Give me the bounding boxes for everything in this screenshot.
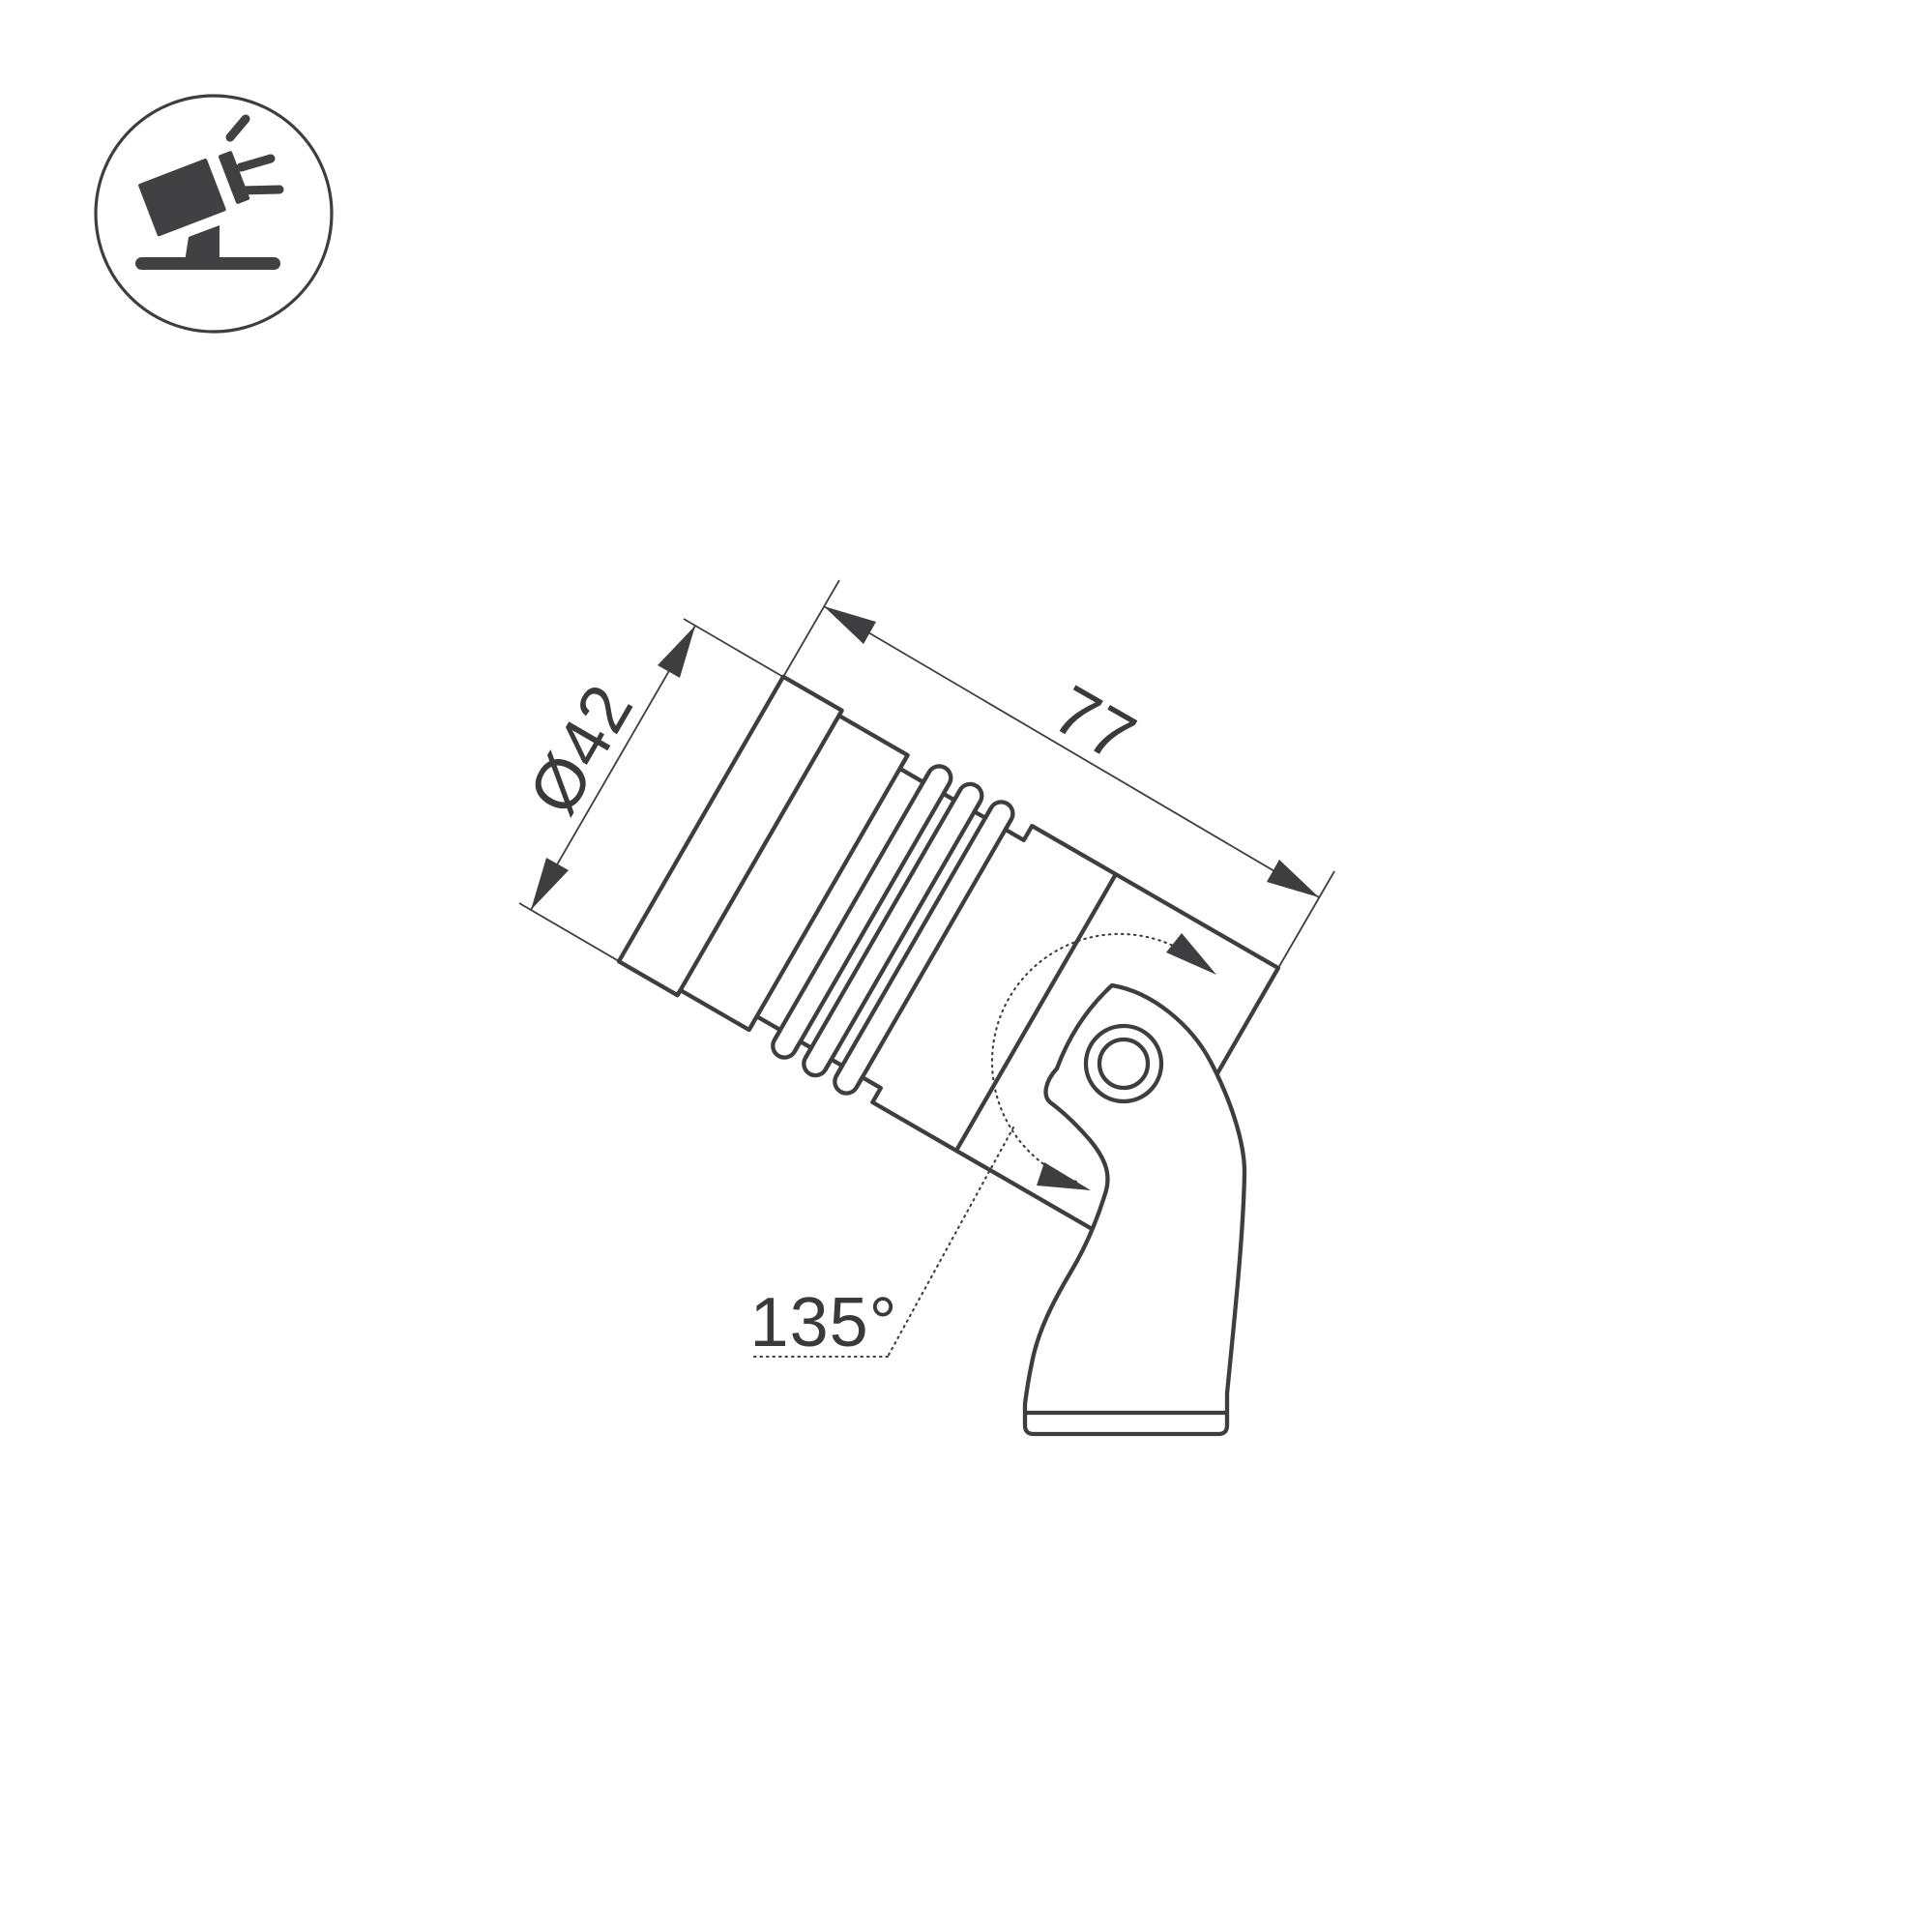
spotlight-badge <box>96 96 332 332</box>
dimension-arrowhead-icon <box>824 606 876 644</box>
length-dimension-label: 77 <box>1040 671 1148 777</box>
light-ray-icon <box>230 119 246 137</box>
light-ray-icon <box>243 190 279 190</box>
dimension-drawing-canvas: 135° Ø42 77 <box>0 0 1932 1932</box>
dimension-arrowhead-icon <box>658 626 695 678</box>
pivot-bolt-circle <box>1099 1039 1148 1088</box>
dimension-arrowhead-icon <box>531 858 569 910</box>
light-ray-icon <box>241 159 271 167</box>
dimension-arrowhead-icon <box>1267 860 1319 897</box>
angle-dimension-label: 135° <box>750 1284 898 1361</box>
tilted-spotlight-icon <box>135 119 280 270</box>
diameter-dimension-label: Ø42 <box>514 672 649 827</box>
